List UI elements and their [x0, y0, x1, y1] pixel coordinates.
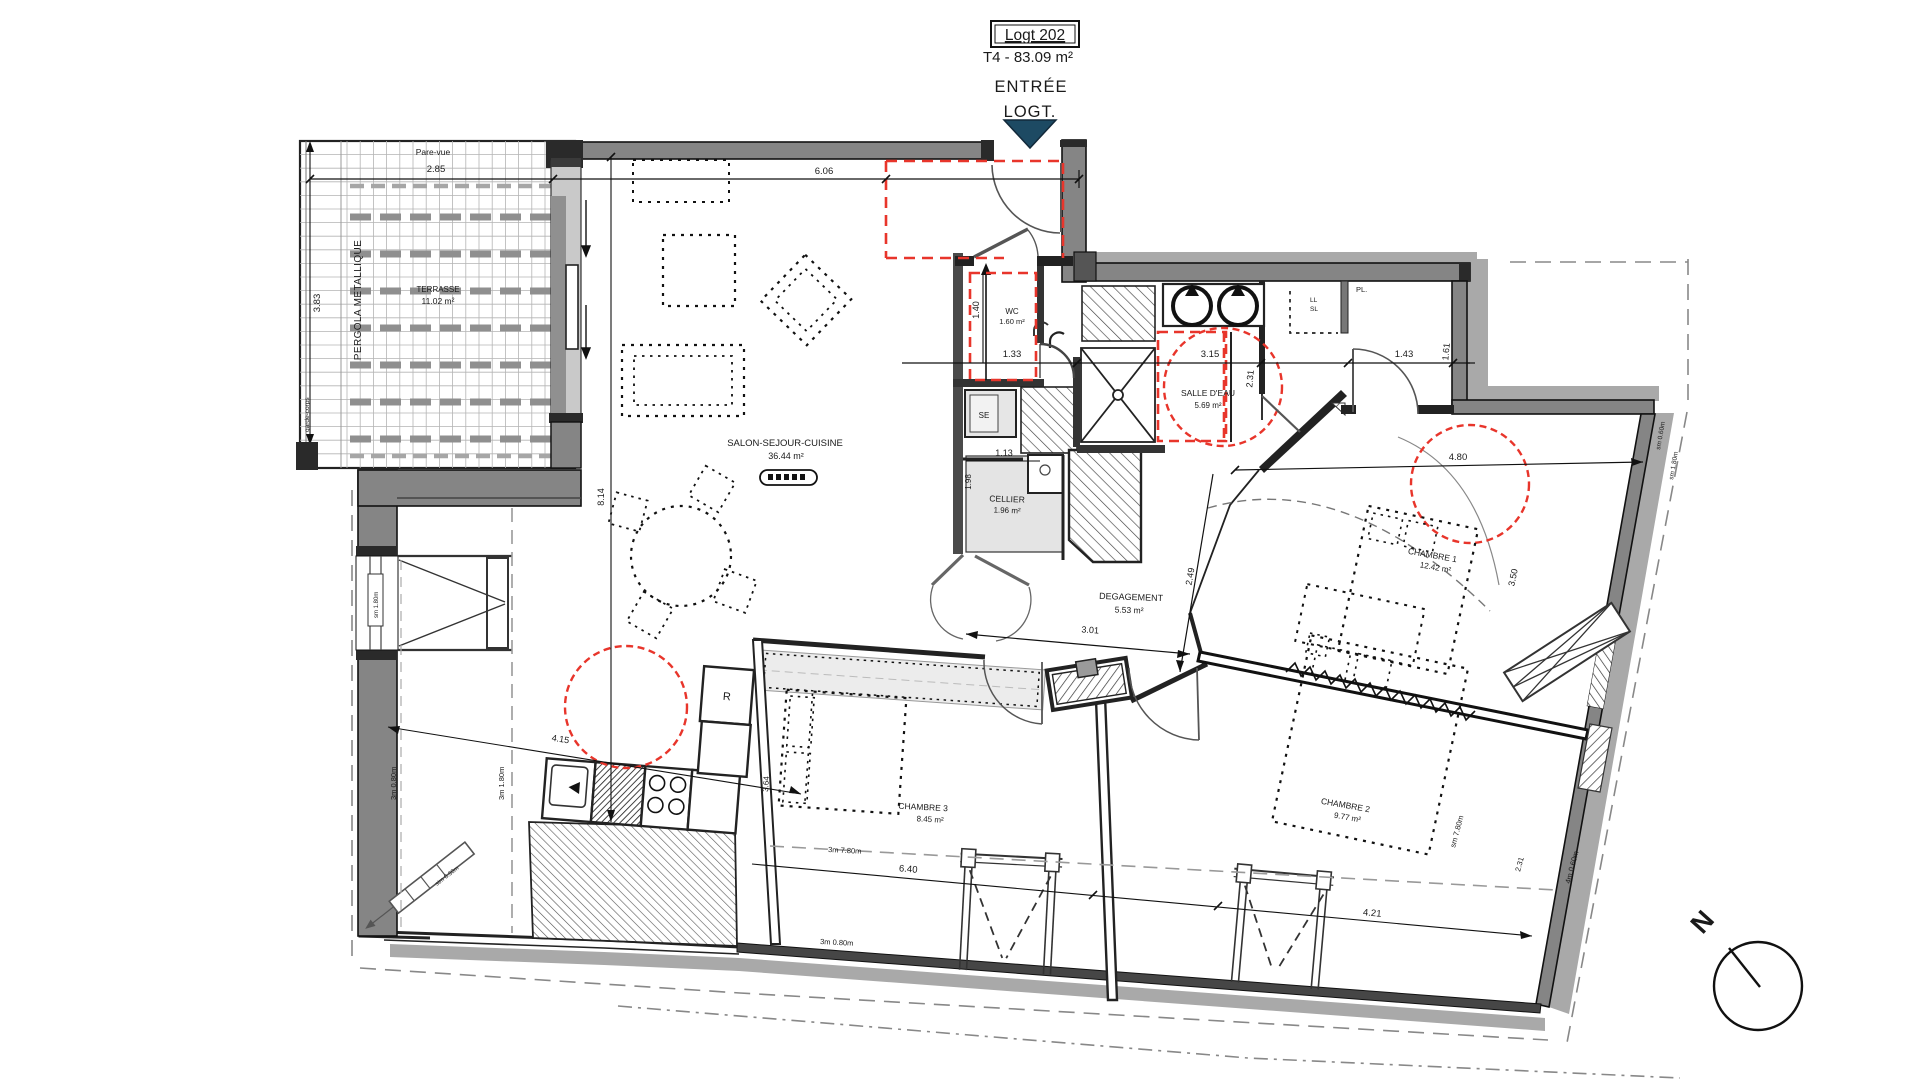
svg-text:WC: WC [1005, 307, 1019, 316]
svg-text:6.06: 6.06 [815, 166, 834, 177]
svg-text:1.43: 1.43 [1395, 349, 1414, 360]
svg-text:PERGOLA METALLIQUE: PERGOLA METALLIQUE [353, 240, 364, 360]
svg-text:SALON-SEJOUR-CUISINE: SALON-SEJOUR-CUISINE [727, 438, 843, 449]
svg-text:8.45 m²: 8.45 m² [916, 814, 944, 824]
svg-text:1.33: 1.33 [1003, 349, 1022, 360]
svg-text:SALLE D'EAU: SALLE D'EAU [1181, 388, 1235, 398]
svg-text:3m 1.80m: 3m 1.80m [497, 767, 506, 800]
svg-text:2.85: 2.85 [427, 164, 446, 175]
svg-text:LOGT.: LOGT. [1004, 103, 1057, 121]
svg-text:R: R [722, 691, 731, 704]
svg-text:ENTRÉE: ENTRÉE [995, 77, 1068, 96]
svg-text:3m 7.80m: 3m 7.80m [828, 845, 862, 856]
svg-text:PL.: PL. [1356, 285, 1367, 294]
svg-text:5.53 m²: 5.53 m² [1115, 605, 1144, 616]
svg-text:3m 0.80m: 3m 0.80m [820, 937, 854, 948]
svg-text:sm 1.80m: sm 1.80m [374, 592, 380, 618]
svg-text:4.80: 4.80 [1449, 452, 1468, 463]
svg-text:1.40: 1.40 [971, 301, 981, 319]
svg-text:2.31: 2.31 [1244, 370, 1255, 388]
svg-text:3.01: 3.01 [1081, 624, 1099, 635]
svg-text:3.83: 3.83 [312, 294, 323, 313]
svg-text:5.69 m²: 5.69 m² [1194, 401, 1221, 410]
svg-text:3.64: 3.64 [761, 775, 771, 792]
svg-text:4.21: 4.21 [1363, 907, 1382, 920]
svg-text:8.14: 8.14 [596, 488, 606, 506]
svg-text:SL: SL [1310, 306, 1318, 313]
svg-text:36.44 m²: 36.44 m² [768, 451, 804, 461]
svg-text:Logt 202: Logt 202 [1005, 27, 1065, 44]
svg-text:TERRASSE: TERRASSE [416, 285, 459, 294]
svg-text:1.60 m²: 1.60 m² [999, 317, 1025, 326]
svg-text:SE: SE [979, 411, 990, 420]
svg-text:6.40: 6.40 [899, 863, 918, 876]
svg-text:CELLIER: CELLIER [989, 493, 1025, 504]
svg-text:1.98: 1.98 [964, 474, 973, 490]
svg-text:11.02 m²: 11.02 m² [422, 296, 455, 306]
svg-text:3.15: 3.15 [1201, 349, 1220, 360]
svg-text:LL: LL [1310, 297, 1318, 304]
svg-text:3m 0.80m: 3m 0.80m [389, 767, 398, 800]
svg-text:1.96 m²: 1.96 m² [993, 506, 1021, 516]
svg-text:T4 - 83.09 m²: T4 - 83.09 m² [983, 49, 1073, 66]
svg-text:Pare-vue: Pare-vue [416, 147, 451, 157]
svg-text:1.61: 1.61 [1440, 343, 1451, 361]
svg-text:1.13: 1.13 [995, 448, 1013, 458]
